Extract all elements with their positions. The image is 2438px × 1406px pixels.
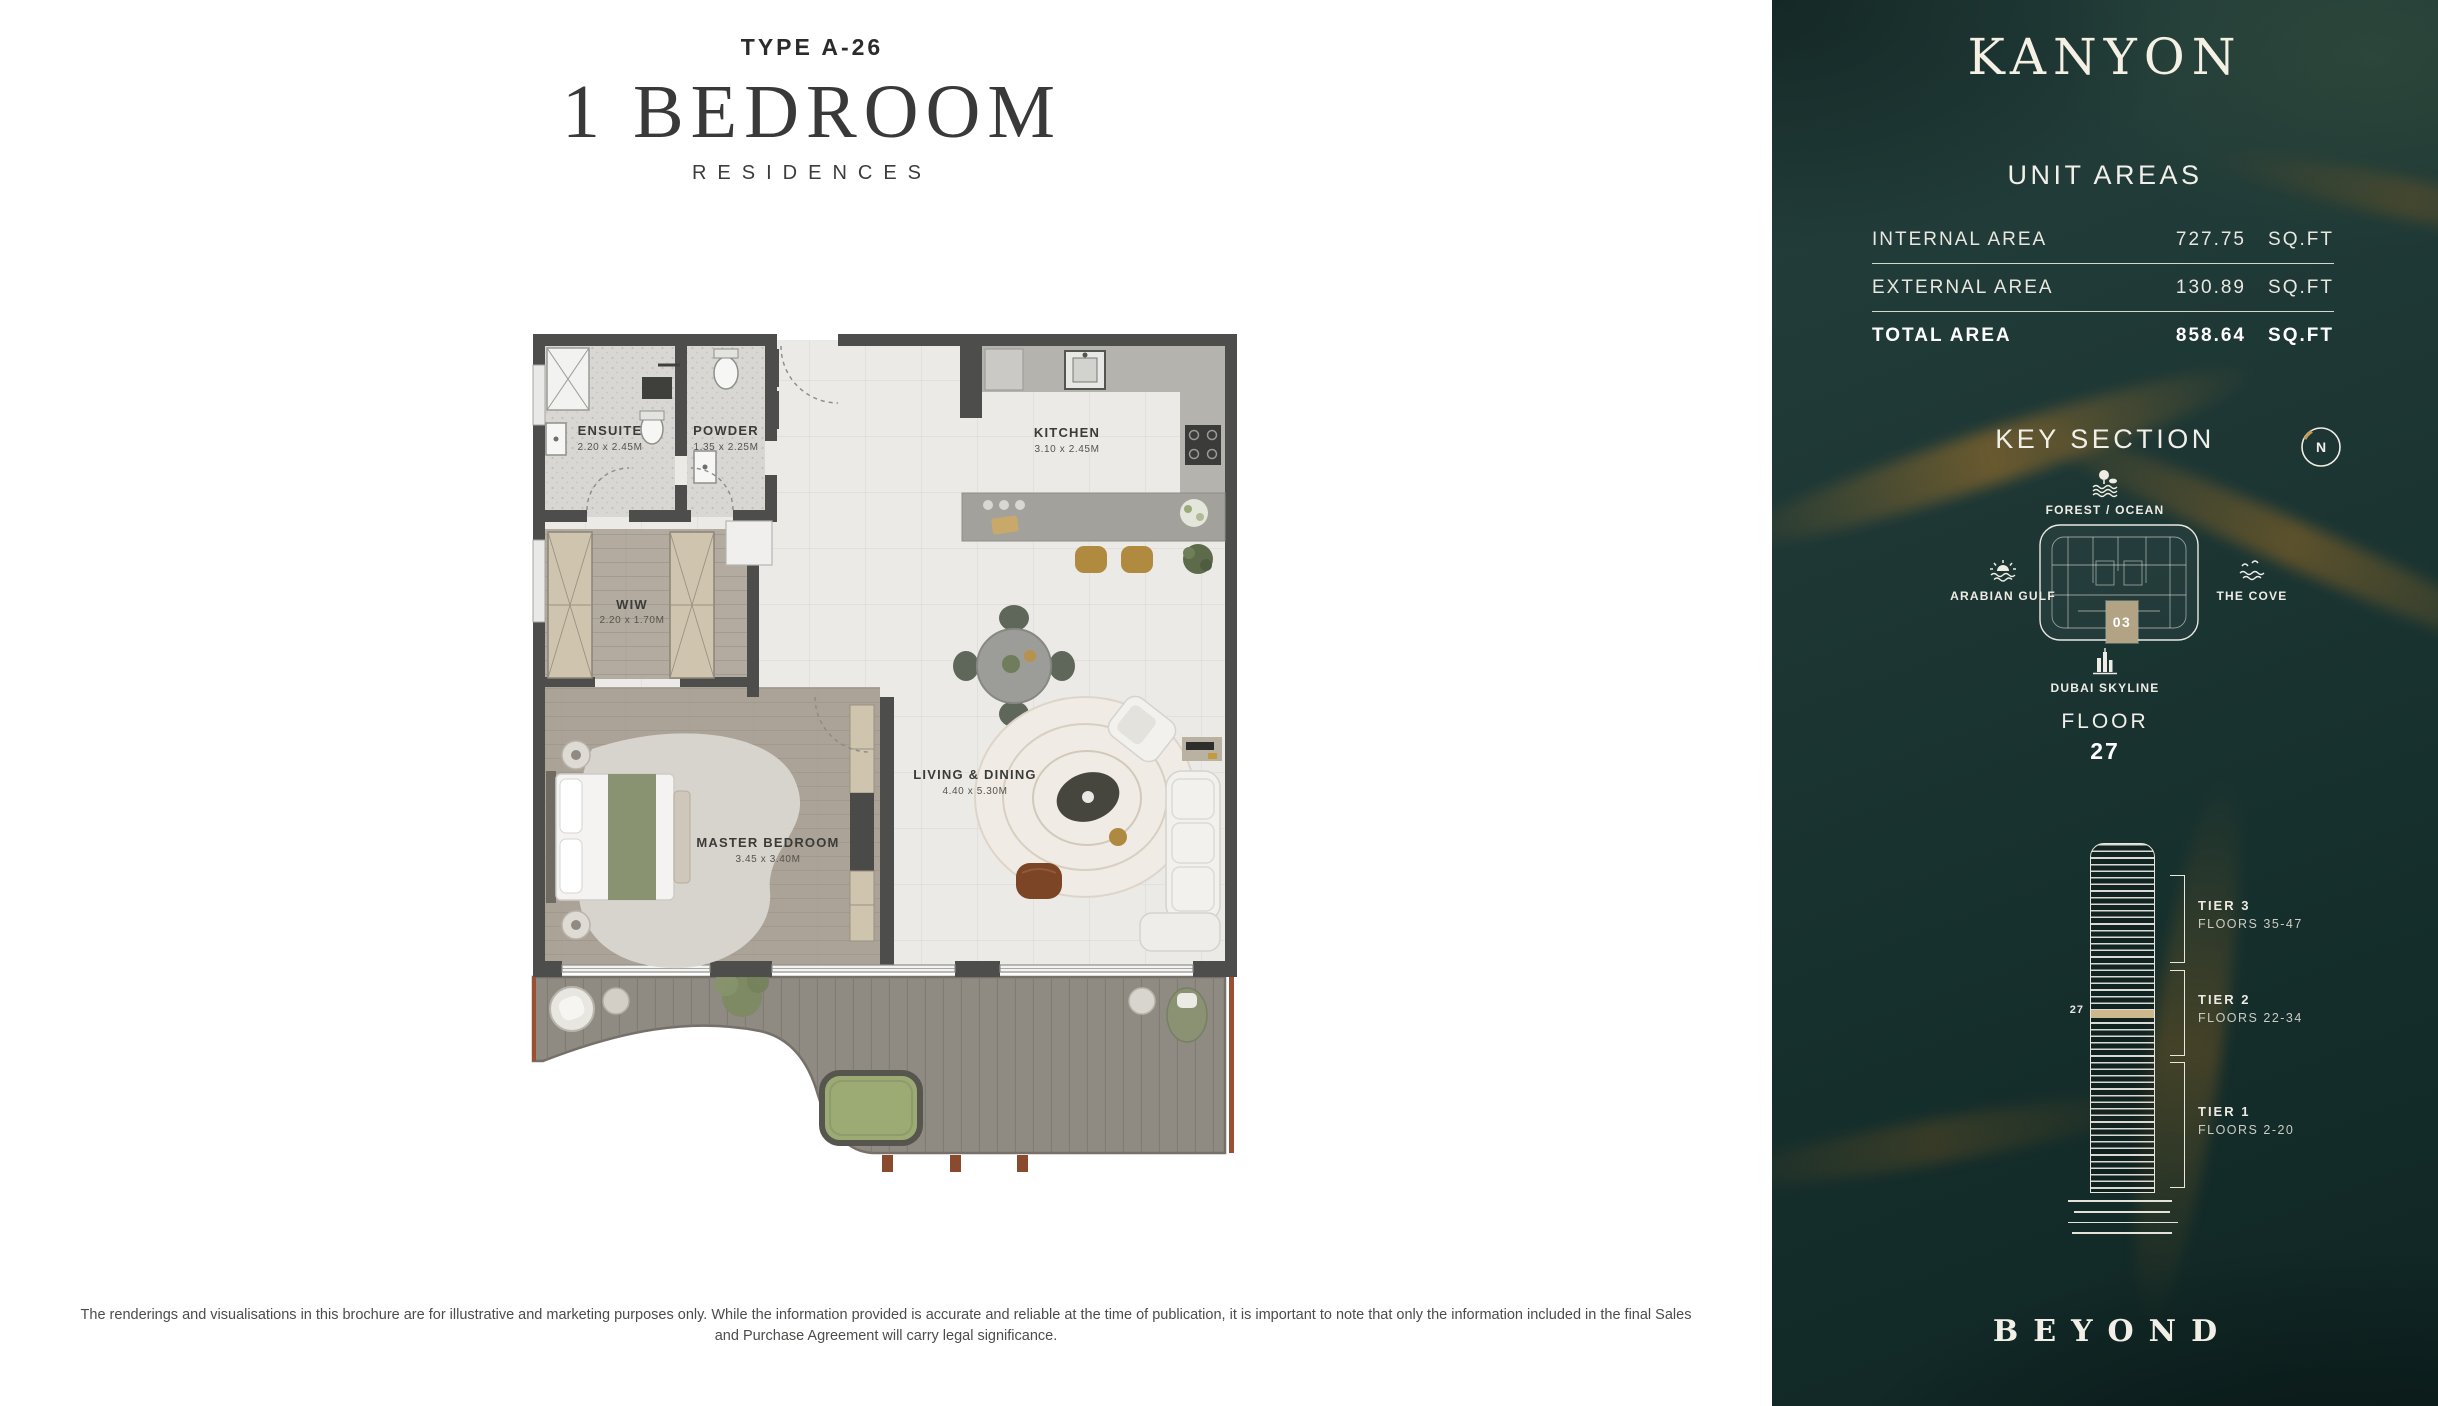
- area-label: TOTAL AREA: [1872, 325, 2136, 347]
- landmark-forest-ocean: FOREST / OCEAN: [2025, 468, 2185, 518]
- disclaimer-line-2: and Purchase Agreement will carry legal …: [0, 1326, 1772, 1347]
- the-cove-icon: [2235, 558, 2269, 584]
- unit-number-badge: 03: [2106, 601, 2138, 643]
- table-row: INTERNAL AREA 727.75 SQ.FT: [1872, 216, 2334, 264]
- room-label-powder: POWDER: [693, 423, 759, 438]
- bedroom-tv-unit: [850, 793, 874, 871]
- brochure-page: TYPE A-26 1 BEDROOM RESIDENCES: [0, 0, 2438, 1406]
- floor-plan: ENSUITE 2.20 x 2.45M POWDER 1.35 x 2.25M…: [530, 325, 1240, 1195]
- page-title: 1 BEDROOM: [0, 69, 1624, 156]
- area-unit: SQ.FT: [2246, 325, 2334, 347]
- area-unit: SQ.FT: [2246, 277, 2334, 299]
- tier-1-bracket: [2170, 1062, 2185, 1188]
- sofa: [1166, 771, 1220, 921]
- dubai-skyline-icon: [2088, 648, 2122, 676]
- bed-headboard: [546, 771, 556, 903]
- svg-text:2.20 x 1.70M: 2.20 x 1.70M: [599, 615, 664, 626]
- floor-label: FLOOR: [1772, 710, 2438, 734]
- tier-3-bracket: [2170, 875, 2185, 963]
- page-subtitle: RESIDENCES: [0, 162, 1624, 185]
- fridge: [985, 349, 1023, 390]
- disclaimer: The renderings and visualisations in thi…: [0, 1305, 1772, 1347]
- room-label-kitchen: KITCHEN: [1034, 425, 1100, 440]
- unit-areas-table: INTERNAL AREA 727.75 SQ.FT EXTERNAL AREA…: [1872, 216, 2334, 360]
- compass-north-label: N: [2299, 425, 2343, 469]
- svg-text:1.35 x 2.25M: 1.35 x 2.25M: [693, 442, 758, 453]
- lawn-patch: [822, 1073, 920, 1143]
- landmark-arabian-gulf: ARABIAN GULF: [1947, 558, 2059, 604]
- balcony-terrace: [532, 971, 1234, 1172]
- svg-text:2.20 x 2.45M: 2.20 x 2.45M: [577, 442, 642, 453]
- area-value: 858.64: [2136, 325, 2246, 347]
- sofa-chaise: [1140, 913, 1220, 951]
- highlighted-floor: [2091, 1010, 2154, 1018]
- svg-text:3.45 x 3.40M: 3.45 x 3.40M: [735, 854, 800, 865]
- area-value: 130.89: [2136, 277, 2246, 299]
- beyond-logo: BEYOND: [1772, 1314, 2438, 1349]
- room-label-ensuite: ENSUITE: [578, 423, 643, 438]
- landmark-the-cove: THE COVE: [2196, 558, 2308, 604]
- balcony-pouf-right: [1129, 988, 1155, 1014]
- bed-throw: [608, 774, 656, 900]
- room-label-living: LIVING & DINING: [913, 767, 1036, 782]
- vanity-cabinet: [642, 377, 672, 399]
- room-label-master: MASTER BEDROOM: [696, 835, 839, 850]
- floor-plan-drawing: ENSUITE 2.20 x 2.45M POWDER 1.35 x 2.25M…: [530, 325, 1240, 1195]
- compass: N: [2299, 425, 2343, 469]
- area-label: INTERNAL AREA: [1872, 229, 2136, 251]
- tier-3-label: TIER 3 FLOORS 35-47: [2198, 898, 2398, 931]
- tower-section-diagram: [2090, 843, 2155, 1193]
- unit-areas-title: UNIT AREAS: [1772, 160, 2438, 191]
- unit-type-label: TYPE A-26: [0, 34, 1624, 61]
- kanyon-logo: KANYON: [1772, 28, 2438, 86]
- title-block: TYPE A-26 1 BEDROOM RESIDENCES: [0, 34, 1624, 185]
- tier-1-label: TIER 1 FLOORS 2-20: [2198, 1104, 2398, 1137]
- arabian-gulf-icon: [1986, 558, 2020, 584]
- tower-podium: [2068, 1200, 2178, 1243]
- floorplan-panel: TYPE A-26 1 BEDROOM RESIDENCES: [0, 0, 1772, 1406]
- deck-edge-right: [1229, 977, 1234, 1153]
- cooktop: [1185, 425, 1221, 465]
- bar-stool: [1075, 546, 1107, 573]
- svg-text:3.10 x 2.45M: 3.10 x 2.45M: [1034, 444, 1099, 455]
- tower-current-floor-label: 27: [2060, 1004, 2084, 1016]
- powder-wc: [714, 357, 738, 389]
- forest-ocean-icon: [2088, 468, 2122, 498]
- table-row: EXTERNAL AREA 130.89 SQ.FT: [1872, 264, 2334, 312]
- area-label: EXTERNAL AREA: [1872, 277, 2136, 299]
- bar-stool: [1121, 546, 1153, 573]
- room-label-wiw: WIW: [616, 597, 648, 612]
- balcony-pouf-left: [603, 988, 629, 1014]
- island-flowers: [1180, 499, 1208, 527]
- deck-edge-left: [532, 977, 536, 1061]
- disclaimer-line-1: The renderings and visualisations in thi…: [0, 1305, 1772, 1326]
- tier-2-bracket: [2170, 970, 2185, 1056]
- landmark-dubai-skyline: DUBAI SKYLINE: [2025, 648, 2185, 696]
- area-unit: SQ.FT: [2246, 229, 2334, 251]
- area-value: 727.75: [2136, 229, 2246, 251]
- floor-number: 27: [1772, 738, 2438, 765]
- tier-2-label: TIER 2 FLOORS 22-34: [2198, 992, 2398, 1025]
- table-row-total: TOTAL AREA 858.64 SQ.FT: [1872, 312, 2334, 360]
- svg-text:4.40 x 5.30M: 4.40 x 5.30M: [942, 786, 1007, 797]
- info-sidebar: KANYON UNIT AREAS INTERNAL AREA 727.75 S…: [1772, 0, 2438, 1406]
